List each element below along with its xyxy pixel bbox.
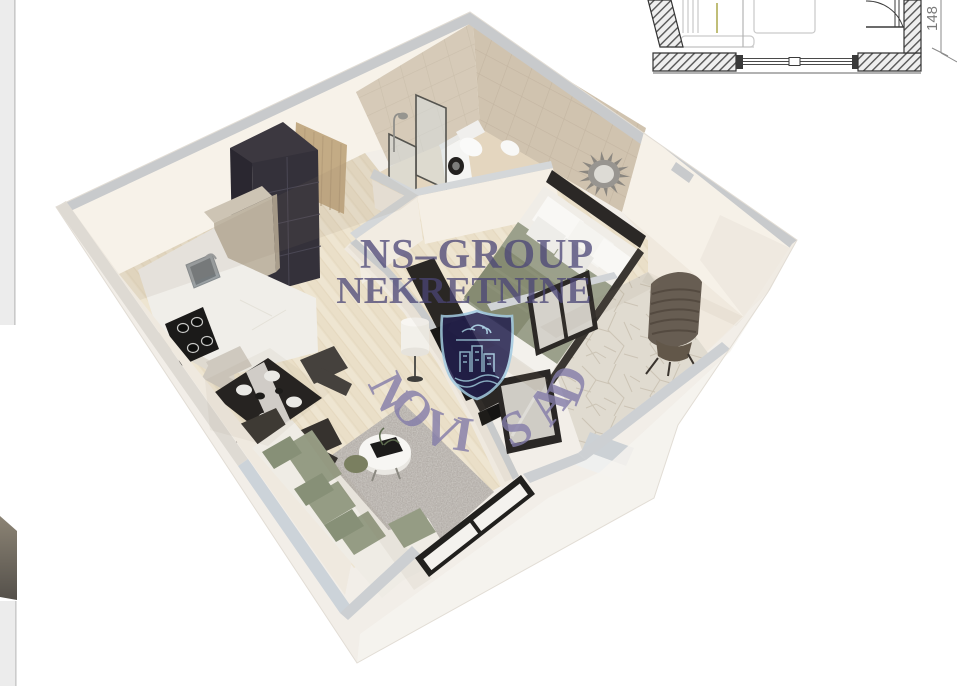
svg-text:148: 148 (924, 6, 941, 31)
svg-text:NEKRETNINE: NEKRETNINE (336, 270, 592, 312)
